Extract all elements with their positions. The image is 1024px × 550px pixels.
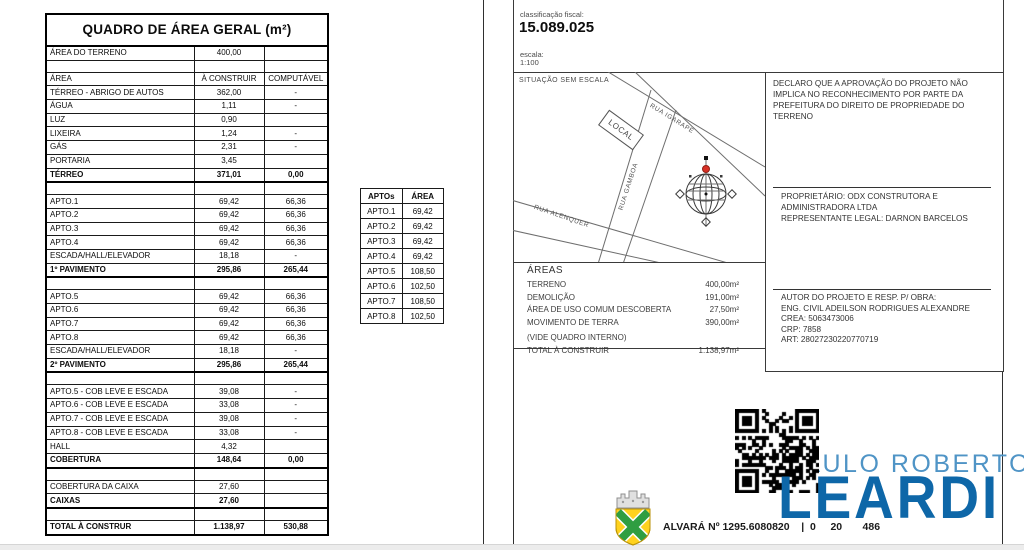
area-label-cell: APTO.5 - COB LEVE E ESCADA — [46, 385, 194, 399]
text-line: ENG. CIVIL ADEILSON RODRIGUES ALEXANDRE — [781, 304, 970, 315]
area-label-cell — [46, 182, 194, 195]
area-label-cell: APTO.2 — [46, 208, 194, 222]
table-row: CAIXAS27,60 — [46, 494, 328, 508]
map-title: SITUAÇÃO SEM ESCALA — [519, 77, 609, 84]
table-row: ÁGUA1,11- — [46, 100, 328, 114]
area-value-cell: 265,44 — [264, 263, 328, 277]
area-value-cell: 362,00 — [194, 86, 264, 100]
table-row: COBERTURA148,640,00 — [46, 453, 328, 467]
area-value-cell: 27,60 — [194, 480, 264, 494]
table-row — [46, 277, 328, 290]
area-value-cell: 69,42 — [194, 304, 264, 318]
fiscal-value: 15.089.025 — [519, 19, 594, 36]
area-value-cell: 0,00 — [264, 168, 328, 182]
area-value-cell: - — [264, 412, 328, 426]
fiscal-label: classificação fiscal: — [520, 10, 584, 19]
area-value-cell: 18,18 — [194, 345, 264, 359]
table-row: APTO.469,4266,36 — [46, 236, 328, 250]
table-row: TÉRREO371,010,00 — [46, 168, 328, 182]
area-value-cell: 66,36 — [264, 236, 328, 250]
areas-row: TERRENO400,00m² — [527, 279, 749, 292]
apto-cell: APTO.7 — [361, 294, 403, 309]
apto-cell: 69,42 — [402, 234, 444, 249]
area-value-cell: - — [264, 385, 328, 399]
area-value-cell — [264, 154, 328, 168]
area-value-cell — [194, 372, 264, 385]
apto-cell: 102,50 — [402, 309, 444, 324]
area-value-cell — [264, 277, 328, 290]
area-value-cell: - — [264, 249, 328, 263]
area-value-cell: 2,31 — [194, 141, 264, 155]
area-value-cell: 0,90 — [194, 113, 264, 127]
table-row: APTO.5108,50 — [361, 264, 444, 279]
table-row: COBERTURA DA CAIXA27,60 — [46, 480, 328, 494]
table-row — [46, 60, 328, 72]
area-label-cell: ESCADA/HALL/ELEVADOR — [46, 345, 194, 359]
area-value-cell — [264, 113, 328, 127]
area-value-cell — [264, 46, 328, 60]
area-value-cell: 18,18 — [194, 249, 264, 263]
apto-cell: APTO.1 — [361, 204, 403, 219]
table-row: ÁREAÀ CONSTRUIRCOMPUTÁVEL — [46, 72, 328, 86]
street-label-gamboa: RUA GAMBOA — [618, 162, 640, 211]
areas-total-label: TOTAL À CONSTRUIR — [527, 345, 609, 358]
areas-row: ÁREA DE USO COMUM DESCOBERTA27,50m² — [527, 304, 749, 317]
quadro-area-geral-table: QUADRO DE ÁREA GERAL (m²)ÁREA DO TERRENO… — [45, 13, 329, 536]
area-label-cell: COBERTURA — [46, 453, 194, 467]
text-line: CREA: 5063473006 — [781, 314, 970, 325]
sheet-divider-line — [483, 0, 484, 544]
text-line: PREFEITURA DO DIREITO DE PROPRIEDADE DO — [773, 101, 995, 112]
area-value-cell: 1,24 — [194, 127, 264, 141]
table-row: APTO.469,42 — [361, 249, 444, 264]
owner-block: PROPRIETÁRIO: ODX CONSTRUTORA EADMINISTR… — [781, 191, 968, 224]
area-value-cell: 27,60 — [194, 494, 264, 508]
text-line: PROPRIETÁRIO: ODX CONSTRUTORA E — [781, 191, 968, 202]
text-line: REPRESENTANTE LEGAL: DARNON BARCELOS — [781, 213, 968, 224]
area-label-cell: APTO.7 — [46, 317, 194, 331]
area-value-cell: 66,36 — [264, 317, 328, 331]
table-row: APTO.869,4266,36 — [46, 331, 328, 345]
areas-title: ÁREAS — [527, 265, 749, 276]
area-value-cell: 66,36 — [264, 222, 328, 236]
area-value-cell — [264, 372, 328, 385]
text-line: CRP: 7858 — [781, 325, 970, 336]
area-label-cell — [46, 60, 194, 72]
area-label-cell — [46, 372, 194, 385]
areas-summary: ÁREAS TERRENO400,00m²DEMOLIÇÃO191,00m²ÁR… — [527, 265, 749, 358]
table-row: APTO.7108,50 — [361, 294, 444, 309]
area-value-cell: 371,01 — [194, 168, 264, 182]
areas-label: MOVIMENTO DE TERRA — [527, 317, 619, 330]
apto-cell: APTO.2 — [361, 219, 403, 234]
area-value-cell: - — [264, 141, 328, 155]
area-value-cell: - — [264, 100, 328, 114]
declaration-text: DECLARO QUE A APROVAÇÃO DO PROJETO NÃOIM… — [773, 79, 995, 123]
areas-value: 400,00m² — [705, 279, 739, 292]
area-value-cell: 1,11 — [194, 100, 264, 114]
area-label-cell: ÁREA — [46, 72, 194, 86]
table-row: APTO.369,42 — [361, 234, 444, 249]
area-value-cell: 295,86 — [194, 263, 264, 277]
text-line: IMPLICA NO RECONHECIMENTO POR PARTE DA — [773, 90, 995, 101]
table-row: APTO.6102,50 — [361, 279, 444, 294]
text-line: ADMINISTRADORA LTDA — [781, 202, 968, 213]
area-value-cell: 66,36 — [264, 195, 328, 209]
watermark-leardi: LEARDI — [778, 468, 1000, 528]
area-value-cell: 0,00 — [264, 453, 328, 467]
table-row: LIXEIRA1,24- — [46, 127, 328, 141]
area-value-cell: À CONSTRUIR — [194, 72, 264, 86]
table-title: QUADRO DE ÁREA GERAL (m²) — [46, 14, 328, 46]
area-value-cell — [194, 182, 264, 195]
area-label-cell: APTO.4 — [46, 236, 194, 250]
area-label-cell: APTO.8 - COB LEVE E ESCADA — [46, 426, 194, 440]
escala-value: 1:100 — [520, 58, 539, 67]
area-value-cell: 69,42 — [194, 317, 264, 331]
apto-cell: 108,50 — [402, 264, 444, 279]
table-row: APTO.769,4266,36 — [46, 317, 328, 331]
area-label-cell — [46, 508, 194, 521]
areas-value: 191,00m² — [705, 292, 739, 305]
street-line — [513, 230, 711, 262]
areas-row: DEMOLIÇÃO191,00m² — [527, 292, 749, 305]
areas-rows: TERRENO400,00m²DEMOLIÇÃO191,00m²ÁREA DE … — [527, 279, 749, 329]
table-row: 1º PAVIMENTO295,86265,44 — [46, 263, 328, 277]
table-row: APTO.6 - COB LEVE E ESCADA33,08- — [46, 399, 328, 413]
area-value-cell — [194, 468, 264, 481]
area-value-cell: 33,08 — [194, 426, 264, 440]
table-row: HALL4,32 — [46, 440, 328, 454]
area-label-cell: PORTARIA — [46, 154, 194, 168]
area-label-cell: APTO.3 — [46, 222, 194, 236]
area-value-cell — [264, 182, 328, 195]
area-label-cell: 2º PAVIMENTO — [46, 358, 194, 372]
area-label-cell: APTO.7 - COB LEVE E ESCADA — [46, 412, 194, 426]
area-label-cell: TÉRREO - ABRIGO DE AUTOS — [46, 86, 194, 100]
areas-row: MOVIMENTO DE TERRA390,00m² — [527, 317, 749, 330]
area-label-cell: APTO.6 - COB LEVE E ESCADA — [46, 399, 194, 413]
compass-globe-icon — [676, 156, 736, 226]
text-line: TERRENO — [773, 112, 995, 123]
table-row: APTO.169,4266,36 — [46, 195, 328, 209]
area-value-cell — [264, 60, 328, 72]
areas-value: 390,00m² — [705, 317, 739, 330]
area-value-cell — [194, 277, 264, 290]
table-row: APTO.269,42 — [361, 219, 444, 234]
area-label-cell — [46, 277, 194, 290]
area-value-cell: 295,86 — [194, 358, 264, 372]
area-label-cell: CAIXAS — [46, 494, 194, 508]
table-row: ESCADA/HALL/ELEVADOR18,18- — [46, 345, 328, 359]
table-row — [46, 508, 328, 521]
area-value-cell — [264, 468, 328, 481]
area-value-cell: 69,42 — [194, 331, 264, 345]
area-value-cell: 69,42 — [194, 222, 264, 236]
document-page: QUADRO DE ÁREA GERAL (m²)ÁREA DO TERRENO… — [0, 0, 1024, 550]
table-row: GÁS2,31- — [46, 141, 328, 155]
areas-label: ÁREA DE USO COMUM DESCOBERTA — [527, 304, 671, 317]
area-value-cell: - — [264, 86, 328, 100]
area-label-cell: ÁGUA — [46, 100, 194, 114]
area-label-cell: LIXEIRA — [46, 127, 194, 141]
apto-cell: APTO.6 — [361, 279, 403, 294]
area-value-cell: 400,00 — [194, 46, 264, 60]
area-value-cell — [264, 508, 328, 521]
area-label-cell: APTO.6 — [46, 304, 194, 318]
area-value-cell: 265,44 — [264, 358, 328, 372]
table-row — [46, 468, 328, 481]
areas-label: TERRENO — [527, 279, 566, 292]
apto-cell: APTO.8 — [361, 309, 403, 324]
table-row: APTO.5 - COB LEVE E ESCADA39,08- — [46, 385, 328, 399]
area-value-cell: 66,36 — [264, 331, 328, 345]
area-label-cell — [46, 468, 194, 481]
areas-note: (VIDE QUADRO INTERNO) — [527, 332, 749, 345]
table-row: 2º PAVIMENTO295,86265,44 — [46, 358, 328, 372]
table-row: APTO.369,4266,36 — [46, 222, 328, 236]
street-label-alenquer: RUA ALENQUER — [533, 204, 590, 229]
area-label-cell: TOTAL À CONSTRUR — [46, 520, 194, 534]
area-value-cell — [194, 60, 264, 72]
area-value-cell: - — [264, 345, 328, 359]
area-value-cell — [264, 440, 328, 454]
area-value-cell: 69,42 — [194, 236, 264, 250]
table-row: PORTARIA3,45 — [46, 154, 328, 168]
areas-total-row: TOTAL À CONSTRUIR 1.138,97m² — [527, 345, 749, 358]
area-value-cell: 66,36 — [264, 208, 328, 222]
area-value-cell: 69,42 — [194, 208, 264, 222]
apto-header-cell: ÁREA — [402, 189, 444, 204]
table-row: APTO.669,4266,36 — [46, 304, 328, 318]
aptos-area-table: APTOsÁREAAPTO.169,42APTO.269,42APTO.369,… — [360, 188, 444, 324]
situation-map: RUA IGARAPE RUA GAMBOA RUA ALENQUER LOCA… — [513, 72, 765, 262]
area-value-cell: 66,36 — [264, 304, 328, 318]
areas-value: 27,50m² — [710, 304, 739, 317]
area-label-cell: ÁREA DO TERRENO — [46, 46, 194, 60]
area-value-cell: 4,32 — [194, 440, 264, 454]
area-label-cell: LUZ — [46, 113, 194, 127]
table-row: APTO.169,42 — [361, 204, 444, 219]
apto-cell: 69,42 — [402, 204, 444, 219]
apto-cell: 108,50 — [402, 294, 444, 309]
table-row: APTO.269,4266,36 — [46, 208, 328, 222]
apto-cell: APTO.4 — [361, 249, 403, 264]
area-label-cell: TÉRREO — [46, 168, 194, 182]
area-value-cell: COMPUTÁVEL — [264, 72, 328, 86]
area-value-cell: 69,42 — [194, 195, 264, 209]
areas-label: DEMOLIÇÃO — [527, 292, 575, 305]
area-label-cell: 1º PAVIMENTO — [46, 263, 194, 277]
table-row: TOTAL À CONSTRUR1.138,97530,88 — [46, 520, 328, 534]
area-value-cell — [264, 494, 328, 508]
area-value-cell — [194, 508, 264, 521]
area-label-cell: HALL — [46, 440, 194, 454]
apto-cell: APTO.5 — [361, 264, 403, 279]
author-block: AUTOR DO PROJETO E RESP. P/ OBRA:ENG. CI… — [781, 293, 970, 346]
area-label-cell: ESCADA/HALL/ELEVADOR — [46, 249, 194, 263]
area-value-cell: 1.138,97 — [194, 520, 264, 534]
text-line: DECLARO QUE A APROVAÇÃO DO PROJETO NÃO — [773, 79, 995, 90]
fiscal-box — [513, 0, 1004, 74]
areas-total-value: 1.138,97m² — [699, 345, 739, 358]
table-row: APTO.8 - COB LEVE E ESCADA33,08- — [46, 426, 328, 440]
area-value-cell: 69,42 — [194, 290, 264, 304]
area-label-cell: APTO.8 — [46, 331, 194, 345]
text-line: AUTOR DO PROJETO E RESP. P/ OBRA: — [781, 293, 970, 304]
area-value-cell: 39,08 — [194, 385, 264, 399]
apto-cell: 102,50 — [402, 279, 444, 294]
table-row: ESCADA/HALL/ELEVADOR18,18- — [46, 249, 328, 263]
apto-header-cell: APTOs — [361, 189, 403, 204]
area-value-cell: 530,88 — [264, 520, 328, 534]
table-row — [46, 372, 328, 385]
area-value-cell: 3,45 — [194, 154, 264, 168]
area-value-cell: - — [264, 399, 328, 413]
area-value-cell: 33,08 — [194, 399, 264, 413]
table-row: APTO.8102,50 — [361, 309, 444, 324]
author-signature-line — [773, 289, 991, 290]
apto-cell: 69,42 — [402, 249, 444, 264]
area-label-cell: APTO.5 — [46, 290, 194, 304]
area-label-cell: COBERTURA DA CAIXA — [46, 480, 194, 494]
text-line: ART: 28027230220770719 — [781, 335, 970, 346]
apto-cell: APTO.3 — [361, 234, 403, 249]
table-row: ÁREA DO TERRENO400,00 — [46, 46, 328, 60]
local-marker: LOCAL — [599, 110, 644, 149]
table-row: LUZ0,90 — [46, 113, 328, 127]
area-value-cell: - — [264, 127, 328, 141]
owner-signature-line — [773, 187, 991, 188]
area-value-cell — [264, 480, 328, 494]
table-row: APTO.569,4266,36 — [46, 290, 328, 304]
area-label-cell: GÁS — [46, 141, 194, 155]
area-value-cell: - — [264, 426, 328, 440]
area-value-cell: 39,08 — [194, 412, 264, 426]
table-row: TÉRREO - ABRIGO DE AUTOS362,00- — [46, 86, 328, 100]
apto-cell: 69,42 — [402, 219, 444, 234]
table-row — [46, 182, 328, 195]
table-row: APTO.7 - COB LEVE E ESCADA39,08- — [46, 412, 328, 426]
city-crest-icon — [610, 488, 656, 546]
area-value-cell: 66,36 — [264, 290, 328, 304]
area-label-cell: APTO.1 — [46, 195, 194, 209]
area-value-cell: 148,64 — [194, 453, 264, 467]
